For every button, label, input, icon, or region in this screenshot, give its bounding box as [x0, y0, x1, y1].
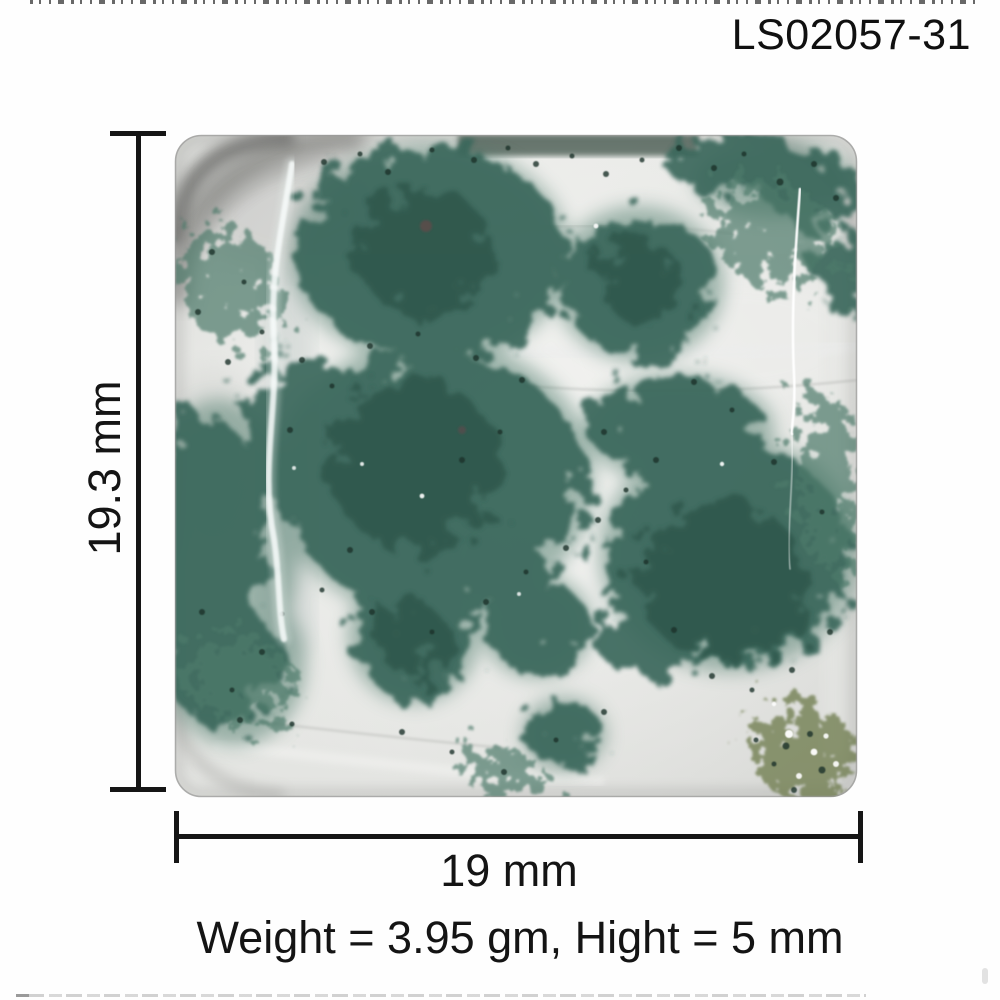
product-code: LS02057-31	[732, 13, 971, 58]
height-dimension-bottom-cap	[110, 787, 166, 792]
olive-druzy-patch	[754, 706, 858, 798]
gemstone-image	[174, 134, 858, 798]
stone-body	[174, 134, 858, 798]
width-dimension-line	[177, 834, 861, 839]
cropped-text-remnant-bottom	[28, 994, 866, 997]
edge-smudge	[982, 968, 988, 984]
width-dimension-label: 19 mm	[409, 847, 609, 894]
weight-height-caption: Weight = 3.95 gm, Hight = 5 mm	[70, 914, 970, 961]
product-measurement-card: LS02057-31	[0, 0, 1000, 1000]
width-dimension-right-cap	[858, 811, 863, 863]
cropped-text-remnant-bottom-dark	[16, 994, 29, 997]
height-dimension-label: 19.3 mm	[81, 368, 131, 568]
height-dimension-line	[136, 131, 141, 792]
cropped-text-remnant-top	[30, 0, 975, 4]
